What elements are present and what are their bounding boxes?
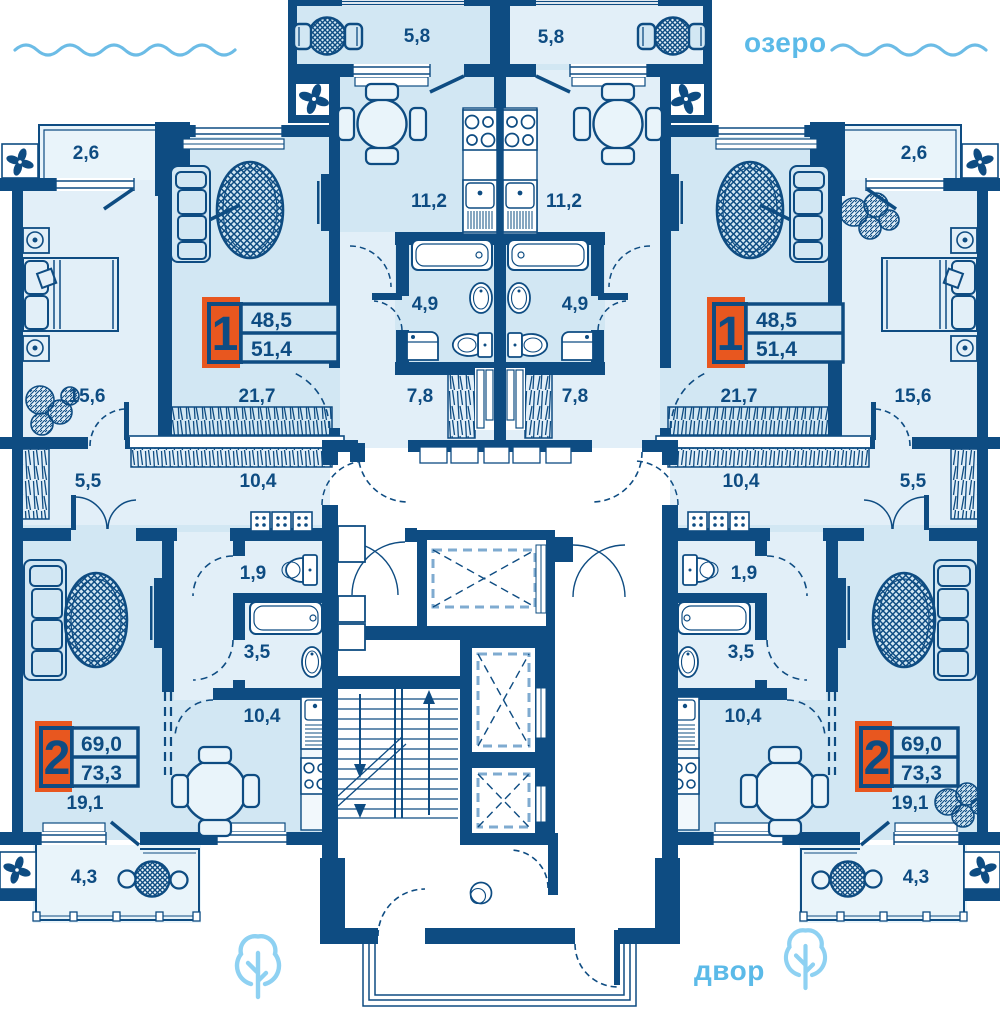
svg-text:7,8: 7,8 [407, 386, 433, 407]
svg-text:48,5: 48,5 [251, 309, 292, 332]
svg-text:21,7: 21,7 [239, 386, 276, 407]
svg-text:4,3: 4,3 [71, 867, 97, 888]
svg-text:69,0: 69,0 [81, 733, 122, 756]
svg-text:69,0: 69,0 [901, 733, 942, 756]
svg-text:7,8: 7,8 [562, 386, 588, 407]
svg-text:5,5: 5,5 [900, 471, 927, 492]
svg-text:19,1: 19,1 [892, 793, 929, 814]
svg-text:2,6: 2,6 [73, 143, 99, 164]
svg-text:73,3: 73,3 [901, 762, 942, 785]
svg-text:1,9: 1,9 [731, 563, 757, 584]
svg-text:10,4: 10,4 [725, 706, 762, 727]
svg-text:11,2: 11,2 [546, 191, 582, 212]
svg-text:2,6: 2,6 [901, 143, 927, 164]
svg-text:10,4: 10,4 [244, 706, 281, 727]
svg-text:1: 1 [717, 308, 744, 361]
svg-text:5,8: 5,8 [538, 27, 564, 48]
svg-text:4,9: 4,9 [412, 294, 438, 315]
svg-text:4,9: 4,9 [562, 294, 588, 315]
svg-text:19,1: 19,1 [67, 793, 104, 814]
svg-text:51,4: 51,4 [251, 338, 292, 361]
svg-text:2: 2 [44, 732, 71, 785]
svg-text:3,5: 3,5 [244, 642, 271, 663]
svg-text:1: 1 [212, 308, 239, 361]
svg-text:10,4: 10,4 [723, 471, 760, 492]
svg-text:73,3: 73,3 [81, 762, 122, 785]
svg-text:10,4: 10,4 [240, 471, 277, 492]
svg-text:2: 2 [864, 732, 891, 785]
svg-text:5,5: 5,5 [75, 471, 102, 492]
svg-text:48,5: 48,5 [756, 309, 797, 332]
svg-text:21,7: 21,7 [721, 386, 758, 407]
svg-text:1,9: 1,9 [240, 563, 266, 584]
svg-text:5,8: 5,8 [404, 26, 430, 47]
svg-text:озеро: озеро [744, 27, 827, 58]
svg-text:двор: двор [694, 955, 765, 986]
svg-text:4,3: 4,3 [903, 867, 929, 888]
svg-text:51,4: 51,4 [756, 338, 797, 361]
svg-text:15,6: 15,6 [895, 386, 932, 407]
svg-text:3,5: 3,5 [728, 642, 755, 663]
svg-text:15,6: 15,6 [69, 386, 106, 407]
svg-text:11,2: 11,2 [411, 191, 447, 212]
